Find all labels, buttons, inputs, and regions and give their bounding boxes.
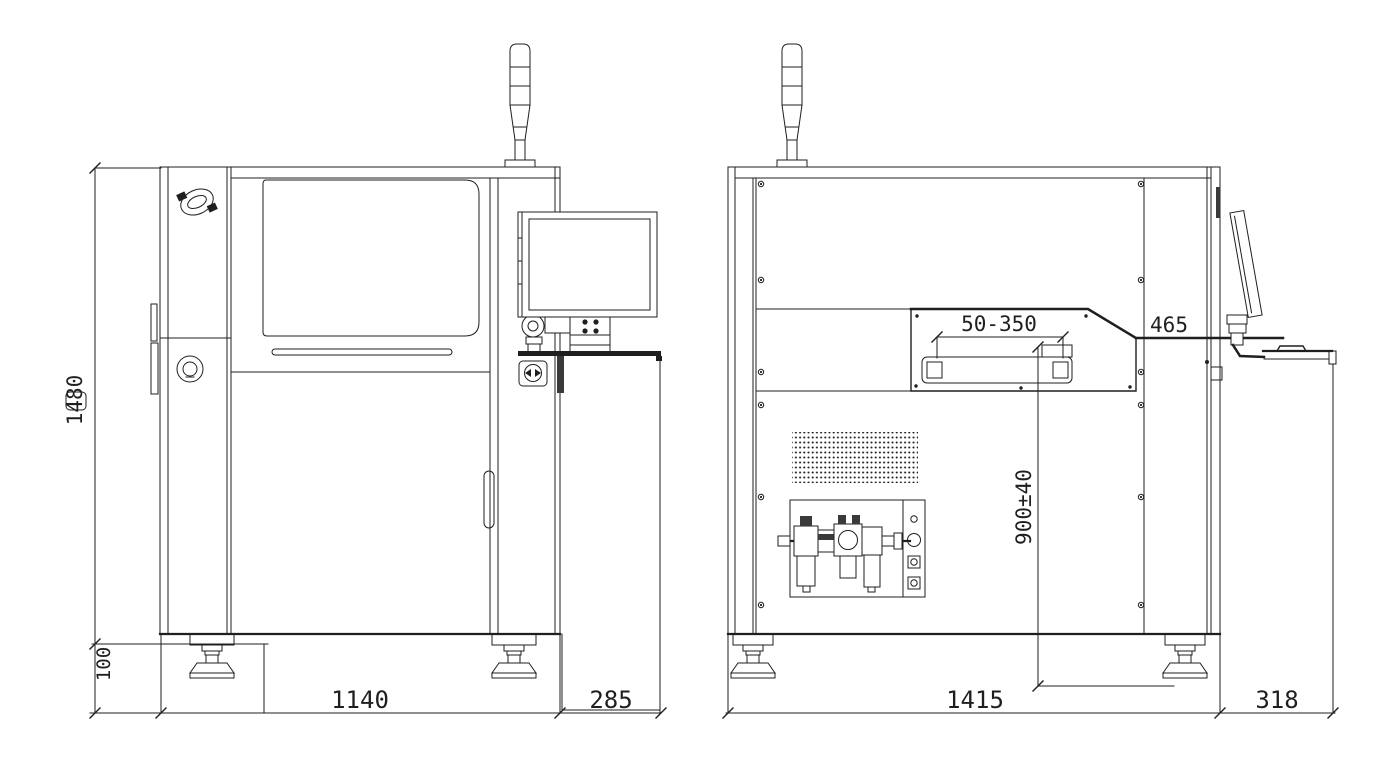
- hood-window: [263, 180, 479, 355]
- monitor-stand: [562, 356, 660, 713]
- dim-overall-height: 1480: [63, 375, 87, 426]
- port-marker: [908, 556, 920, 568]
- side-monitor-screen: [1230, 211, 1262, 318]
- port-marker: [908, 577, 920, 589]
- front-view: 1480 100 1140 285: [63, 44, 666, 718]
- side-monitor-assembly: [1205, 187, 1336, 380]
- mount-rail: [1216, 187, 1220, 218]
- tower-light: [777, 44, 807, 167]
- tray-arm: [1233, 345, 1264, 357]
- door-handle[interactable]: [484, 471, 494, 528]
- shelf-clamp: [519, 361, 547, 386]
- adjustable-foot: [492, 645, 536, 678]
- dim-stand-width: 285: [589, 686, 632, 714]
- dim-rear-offset: 465: [1150, 313, 1188, 337]
- monitor-shelf: [518, 351, 661, 356]
- side-base-and-feet: [731, 634, 1207, 678]
- front-base-and-feet: [190, 634, 536, 678]
- brand-logo: [176, 184, 218, 220]
- dim-body-depth: 1415: [946, 686, 1004, 714]
- monitor-bracket-box: [570, 317, 610, 355]
- keyboard-tray[interactable]: [1263, 346, 1336, 364]
- dim-tray-offset: 318: [1255, 686, 1298, 714]
- monitor-pole: [557, 356, 564, 393]
- pneumatic-panel: [778, 500, 925, 597]
- dim-conveyor-width-range: 50-350: [961, 312, 1037, 336]
- vent-grid: [792, 432, 918, 483]
- dim-conveyor-height: 900±40: [1012, 469, 1036, 545]
- dim-base-foot-height: 100: [93, 647, 115, 681]
- front-machine-body: [160, 167, 560, 634]
- tower-light: [505, 44, 535, 167]
- emergency-stop-button[interactable]: [177, 356, 203, 382]
- drawing-sheet: 1480 100 1140 285: [0, 0, 1398, 773]
- adjustable-foot: [1163, 645, 1207, 678]
- side-view: 50-350 465 900±40 1415 318: [723, 44, 1338, 718]
- pneumatic-frl-unit: [778, 515, 910, 592]
- dim-conveyor-height-lines: [1033, 342, 1174, 691]
- dim-body-width: 1140: [331, 686, 389, 714]
- adjustable-foot: [731, 645, 775, 678]
- port-small: [911, 516, 917, 522]
- conveyor-slot: [272, 349, 452, 355]
- conveyor-rail-slot: [922, 345, 1072, 383]
- adjustable-foot: [190, 645, 234, 678]
- monitor-assembly: [518, 212, 662, 393]
- swivel-joint: [522, 315, 544, 337]
- machine-dimension-drawing: 1480 100 1140 285: [0, 0, 1398, 773]
- monitor-screen[interactable]: [522, 212, 657, 317]
